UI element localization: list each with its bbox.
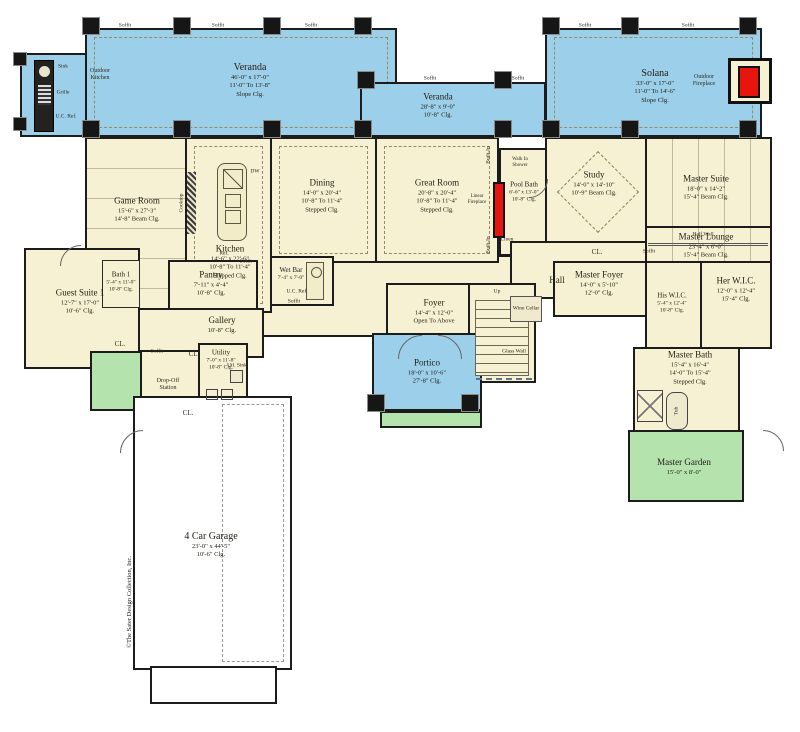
label-great-room: Great Room 20'-8" x 20'-4" 10'-8" To 11'… [415,178,459,215]
refrigerator-label: Ref. [219,251,228,258]
cooktop-label: Cooktop [179,194,186,213]
column [543,18,559,34]
built-in-label: Built-In [486,236,493,253]
label-veranda-mid: Veranda 28'-8" x 9'-0" 10'-8" Clg. [421,92,456,121]
linen-label: Linen [501,237,514,244]
room-clg: 10'-6" Clg. [184,552,237,560]
room-clg: Open To Above [414,318,455,326]
soffit-label: Soffit [151,349,163,356]
room-clg: 15'-4" Beam Clg. [679,252,734,260]
label-line: Outdoor [693,74,715,81]
soffit-label: Soffit [424,76,436,83]
outdoor-kitchen-counter [34,60,54,132]
room-dims: 5'-4" x 11'-0" [106,279,135,286]
column [622,121,638,137]
drop-off-station-label: Drop-Off Station [157,378,180,392]
label-master-suite: Master Suite 18'-0" x 14'-2" 15'-4" Beam… [683,174,729,203]
column [622,18,638,34]
up-label: Up [494,289,501,296]
column [14,53,26,65]
room-clg: 11'-0" To 13'-8" [229,82,270,90]
column [174,121,190,137]
room-name: Wet Bar [278,266,305,275]
label-line: Station [157,385,180,392]
room-clg: Stepped Clg. [668,378,712,386]
label-line: Shower [512,163,528,169]
room-dims: 46'-0" x 17'-0" [229,74,270,82]
wall-oven [225,210,241,224]
room-dims: 18'-0" x 10'-6" [408,369,446,377]
label-pool-bath: Pool Bath 6'-6" x 13'-0" 10'-8" Clg. [509,180,538,203]
room-name: Hall [549,275,565,287]
soffit-label: Soffit [305,23,317,30]
label-portico: Portico 18'-0" x 10'-6" 27'-8" Clg. [408,358,446,387]
built-in-label: Built-In [486,146,493,163]
room-clg: 12'-0" Clg. [575,290,623,298]
label-line: Outdoor [90,68,110,75]
room-name: Dining [301,178,342,190]
label-line: Fireplace [468,200,487,206]
room-clg: 11'-0" To 14'-6" [634,88,675,96]
wine-cellar-label: Wine Cellar [513,306,540,313]
soffit-label: Soffit [643,249,655,256]
room-clg: Slope Clg. [634,97,675,105]
garden-side-door-arc [742,430,784,472]
label-dining: Dining 14'-0" x 20'-4" 10'-8" To 11'-4" … [301,178,342,215]
outdoor-fireplace-label: Outdoor Fireplace [693,74,715,88]
label-master-foyer: Master Foyer 14'-0" x 5'-10" 12'-0" Clg. [575,270,623,299]
room-clg: Stepped Clg. [301,206,342,214]
room-name: Solana [634,67,675,80]
room-name: Veranda [229,61,270,74]
room-dims: 14'-0" x 20'-4" [301,189,342,197]
label-line: Fireplace [693,81,715,88]
room-dims: 28'-8" x 9'-0" [421,103,456,111]
kitchen-island [217,163,247,241]
room-name: Portico [408,358,446,370]
room-name: 4 Car Garage [184,530,237,543]
label-her-wic: Her W.I.C. 12'-0" x 12'-4" 15'-4" Clg. [717,276,756,305]
uc-ref-label: U.C. Ref. [55,114,76,121]
room-dims: 14'-4" x 12'-0" [414,309,455,317]
soffit-label: Soffit [682,23,694,30]
microwave-drawer [225,194,241,208]
room-dims: 12'-0" x 12'-4" [717,287,756,295]
room-name: Foyer [414,298,455,310]
glass-wall-line [476,378,532,380]
portico-garden-strip [380,411,482,428]
room-clg: 10'-9" Beam Clg. [571,190,616,198]
column [14,118,26,130]
room-name: Master Garden [657,457,711,469]
closet-label: CL. [592,248,603,256]
column [495,121,511,137]
room-dims: 23'-4" x 6'-0" [679,243,734,251]
room-dims: 6'-6" x 13'-0" [509,189,538,196]
label-solana: Solana 33'-0" x 17'-0" 11'-0" To 14'-6" … [634,67,675,105]
room-name: Kitchen [209,244,250,256]
glass-wall-label: Glass Wall [502,349,526,356]
room-clg: 10'-8" Clg. [509,197,538,204]
column [355,121,371,137]
room-clg: 10'-8" Clg. [657,308,687,315]
dryer [221,389,233,400]
grille-burners [38,85,51,105]
room-clg: 15'-4" Beam Clg. [683,194,729,202]
label-veranda-left: Veranda 46'-0" x 17'-0" 11'-0" To 13'-8"… [229,61,270,99]
room-name: Gallery [208,315,236,327]
room-clg: 15'-4" Clg. [717,296,756,304]
room-dims: 23'-0" x 44'-5" [184,543,237,551]
column [358,72,374,88]
room-dims: 14'-0" x 14'-10" [571,181,616,189]
room-dims: 20'-8" x 20'-4" [415,189,459,197]
label-game-room: Game Room 15'-6" x 27'-3" 14'-8" Beam Cl… [114,196,160,225]
room-clg: 10'-8" Clg. [194,290,229,298]
outdoor-sink-basin [39,66,50,77]
grille-label: Grille [57,90,70,97]
room-dims: 12'-7" x 17'-0" [56,299,105,307]
room-dims: 5'-4" x 12'-4" [657,300,687,307]
column [495,72,511,88]
room-name: Master Bath [668,350,712,362]
room-clg: 10'-6" Clg. [56,308,105,316]
column [355,18,371,34]
label-line: Kitchen [90,75,110,82]
room-dims: 15'-4" x 16'-4" [668,361,712,369]
dishwasher [223,169,243,189]
utility-sink [230,370,243,383]
label-foyer: Foyer 14'-4" x 12'-0" Open To Above [414,298,455,327]
master-shower [637,390,663,422]
label-pantry: Pantry 7'-11" x 4'-4" 10'-8" Clg. [194,270,229,299]
room-clg: 10'-8" To 11'-4" [415,198,459,206]
tub-label: Tub [674,407,681,416]
column [740,121,756,137]
room-name: Master Suite [683,174,729,186]
room-clg: 14'-0" To 15'-4" [668,370,712,378]
room-dims: 33'-0" x 17'-0" [634,80,675,88]
floor-plan: Veranda 46'-0" x 17'-0" 11'-0" To 13'-8"… [0,0,800,732]
room-dims: 18'-0" x 14'-2" [683,185,729,193]
label-wet-bar: Wet Bar 7'-4" x 7'-0" [278,266,305,282]
column [83,18,99,34]
room-name: Game Room [114,196,160,208]
room-name: Study [571,170,616,182]
room-dims: 14'-0" x 5'-10" [575,281,623,289]
label-line: Drop-Off [157,378,180,385]
room-clg: 10'-8" Clg. [208,327,236,335]
column [174,18,190,34]
utility-sink-label: Utl. Sink [227,363,247,370]
room-name: Veranda [421,92,456,104]
label-garage: 4 Car Garage 23'-0" x 44'-5" 10'-6" Clg. [184,530,237,560]
column [462,395,478,411]
room-name: Pantry [194,270,229,282]
label-gallery: Gallery 10'-8" Clg. [208,315,236,335]
wet-bar-counter [306,262,324,300]
column [264,18,280,34]
room-clg: 10'-8" To 11'-4" [301,198,342,206]
column [368,395,384,411]
linear-fireplace-label: Linear Fireplace [468,194,487,206]
uc-ref-label: U.C. Ref. [286,289,307,296]
closet-label: CL. [183,409,194,417]
cooktop-counter [187,172,196,234]
room-clg: 10'-8" Clg. [106,287,135,294]
soffit-label: Soffit [119,23,131,30]
label-his-wic: His W.I.C. 5'-4" x 12'-4" 10'-8" Clg. [657,291,687,314]
room-name: Guest Suite 1 [56,288,105,300]
label-master-garden: Master Garden 15'-0" x 8'-0" [657,457,711,477]
outdoor-fireplace-firebox [738,66,760,98]
washer [206,389,218,400]
room-dims: 15'-6" x 27'-3" [114,207,160,215]
closet-label: CL. [115,340,126,348]
room-clg: Slope Clg. [229,91,270,99]
column [543,121,559,137]
room-name: Pool Bath [509,180,538,189]
room-name: Utility [206,348,235,357]
label-master-bath: Master Bath 15'-4" x 16'-4" 14'-0" To 15… [668,350,712,387]
room-name: Bath 1 [106,270,135,279]
room-dims: 15'-0" x 8'-0" [657,469,711,477]
walk-in-shower-label: Walk In Shower [512,157,528,169]
room-clg: 14'-8" Beam Clg. [114,216,160,224]
sink-label: Sink [58,64,68,71]
column [83,121,99,137]
soffit-label: Soffit [579,23,591,30]
room-name: Her W.I.C. [717,276,756,288]
outdoor-kitchen-label: Outdoor Kitchen [90,68,110,82]
soffit-label: Soffit [512,76,524,83]
column [264,121,280,137]
room-clg: 27'-8" Clg. [408,378,446,386]
room-name: Great Room [415,178,459,190]
room-dims: 7'-11" x 4'-4" [194,281,229,289]
label-guest-suite: Guest Suite 1 12'-7" x 17'-0" 10'-6" Clg… [56,288,105,317]
closet-label: CL. [189,350,200,358]
copyright-text: ©The Sater Design Collection, Inc. [126,556,133,648]
soffit-label: Soffit [212,23,224,30]
label-hall: Hall [549,275,565,287]
room-clg: Stepped Clg. [415,206,459,214]
dishwasher-label: DW [250,169,259,176]
wet-bar-sink [311,267,322,278]
room-name: Master Foyer [575,270,623,282]
half-wall-label: Half Wall [692,232,713,239]
linear-fireplace-firebox [493,182,505,238]
soffit-label: Soffit [288,299,300,306]
garage-bay-bump [150,666,277,704]
soffit-label: Soffit [240,259,252,266]
her-wic-area [700,261,772,349]
label-study: Study 14'-0" x 14'-10" 10'-9" Beam Clg. [571,170,616,199]
room-clg: 10'-8" Clg. [421,112,456,120]
room-name: His W.I.C. [657,291,687,300]
room-dims: 7'-4" x 7'-0" [278,275,305,282]
label-bath1: Bath 1 5'-4" x 11'-0" 10'-8" Clg. [106,270,135,293]
column [740,18,756,34]
